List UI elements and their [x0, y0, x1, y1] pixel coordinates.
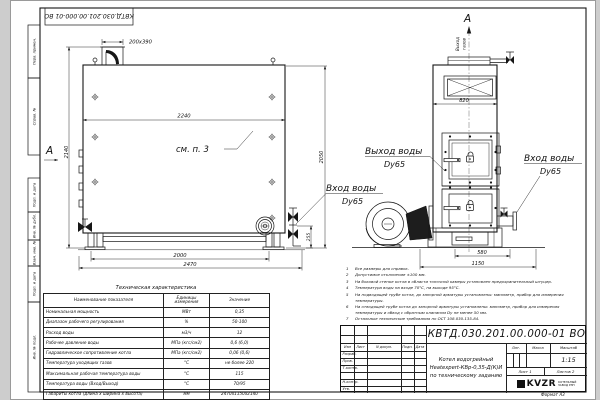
svg-text:Dy65: Dy65 [342, 197, 363, 206]
svg-text:200х390: 200х390 [129, 40, 153, 46]
frame-cell-perv: Перв. примен. [33, 38, 37, 65]
dim-580: 580 [455, 249, 510, 259]
doc-number-stamp: КВТД.030.201.00.000-01 ВО [426, 326, 587, 343]
svg-text:820: 820 [459, 98, 469, 104]
frame-cell-inv-podl: Инв. № подл. [33, 335, 37, 360]
svg-text:Выход воды: Выход воды [365, 147, 422, 157]
dim-chimney: 200х390 [102, 39, 153, 46]
gas-outlet-label-2: газов [462, 37, 467, 50]
front-view: А Выход газов 820 [352, 13, 545, 270]
lower-door [442, 189, 499, 228]
section-label-a: А [45, 145, 53, 157]
upper-door [442, 133, 501, 186]
section-arrow-a: А [44, 145, 58, 160]
col-izm: Изм [341, 343, 354, 351]
table-row: Гидравлическое сопротивление котлаМПа (к… [44, 348, 270, 358]
svg-text:см. п. 3: см. п. 3 [176, 145, 209, 155]
lit-header: Лит. [506, 343, 526, 353]
svg-text:Dy65: Dy65 [384, 160, 405, 169]
view-label-a: А [463, 13, 471, 25]
rear-flange [256, 217, 274, 235]
svg-text:2470: 2470 [183, 262, 197, 268]
frame-cell-podp1: Подп. и дата [33, 183, 37, 207]
rear-valve-assembly [288, 208, 301, 246]
table-row: Диапазон рабочего регулирования%50-100 [44, 317, 270, 327]
note-item: 7Остальные технические требования по ОСТ… [346, 316, 586, 322]
table-row: Номинальная мощностьМВт0,35 [44, 307, 270, 317]
row-tkontr: Т.контр. [341, 365, 367, 372]
blueprint-page: { "doc_number": "КВТД.030.201.00.000-01 … [0, 0, 600, 400]
title-block: КВТД.030.201.00.000-01 ВО Изм Лист N док… [340, 325, 586, 392]
table-row: Максимальная рабочая температура воды°С1… [44, 369, 270, 379]
svg-text:Вход воды: Вход воды [326, 184, 376, 194]
row-razrab: Разраб. [341, 351, 367, 358]
table-row: Рабочее давление водыМПа (кгс/см2)0,6 (6… [44, 338, 270, 348]
dim-2140: 2140 [64, 47, 100, 248]
company-logo: KVZR КОТЕЛЬНЫЙ ЗАВОД РЭП [506, 375, 587, 393]
tech-table-title: Техническая характеристика [43, 285, 269, 291]
tech-table: Наименование показателя Единицы измерени… [43, 293, 270, 400]
col-doc: N докум. [367, 343, 401, 351]
row-prov: Пров. [341, 358, 367, 365]
sheet-number: Лист 1 [506, 367, 544, 375]
svg-text:2140: 2140 [64, 146, 70, 159]
note-item: 2Допустимое отклонение ±100 мм. [346, 272, 586, 278]
table-row: Температура уходящих газов°Сне более 220 [44, 358, 270, 368]
note-item: 1Все размеры для справок. [346, 266, 586, 272]
frame-cell-podp2: Подп. и дата [33, 272, 37, 296]
svg-text:Вход воды: Вход воды [524, 154, 574, 164]
mid-band [442, 186, 499, 189]
frame-cell-sprav: Справ. № [33, 107, 37, 125]
scale-value: 1:15 [550, 353, 587, 367]
frame-cell-vzam: Взам. инв. № [33, 241, 37, 266]
svg-text:Dy65: Dy65 [540, 167, 561, 176]
kvzr-logo-text: KVZR [527, 379, 556, 389]
dim-255: 255 [286, 226, 313, 248]
col-date: Дата [414, 343, 426, 351]
dim-2470: 2470 [79, 250, 302, 271]
dim-2050: 2050 [286, 66, 327, 248]
svg-text:2000: 2000 [173, 253, 187, 259]
legs-and-base [78, 233, 305, 250]
company-name: КОТЕЛЬНЫЙ ЗАВОД РЭП [558, 381, 576, 388]
table-row: Расход водым3/ч12 [44, 328, 270, 338]
see-note-callout: см. п. 3 [176, 131, 253, 155]
right-inlet-pipe [497, 208, 517, 230]
chimney-stub [100, 47, 125, 65]
product-name: Котел водогрейный Heatexpert-КВр-0,35-Д(… [426, 343, 506, 393]
tech-table-header: Наименование показателя Единицы измерени… [44, 293, 270, 307]
gas-outlet-arrow: Выход газов [455, 26, 471, 252]
note-item: 4Температура воды на входе 70°С, на выхо… [346, 285, 586, 291]
scale-header: Масштаб [550, 343, 587, 353]
svg-text:2050: 2050 [319, 151, 325, 164]
frame-cell-inv-dubl: Инв. № дубл. [33, 214, 37, 239]
dim-2240: 2240 [83, 114, 285, 121]
top-cap [448, 52, 514, 65]
label-water-inlet-right: Вход воды Dy65 [517, 154, 582, 212]
row-nkontr: Н.контр. [341, 379, 367, 386]
svg-text:255: 255 [306, 233, 312, 242]
kvzr-logo-icon [517, 380, 525, 388]
mass-header: Масса [526, 343, 550, 353]
label-water-inlet-left: Вход воды Dy65 [296, 184, 383, 224]
left-wall-fittings [78, 150, 92, 232]
lifting-lugs [93, 58, 275, 65]
note-item: 6На отводящей трубе котла до запорной ар… [346, 304, 586, 316]
table-row: Температура воды (Вход/Выход)°С70/95 [44, 379, 270, 389]
tech-characteristics: Техническая характеристика Наименование … [43, 285, 269, 400]
note-item: 3На боковой стенке котла в области топоч… [346, 279, 586, 285]
boiler-body-front [433, 65, 497, 232]
blower-duct [406, 206, 432, 240]
side-view: 200х390 2240 2140 А см. п. 3 [44, 39, 327, 271]
table-row: Габариты котла (длина х ширина х высота)… [44, 389, 270, 399]
padlock-icon [467, 152, 474, 162]
dim-2000: 2000 [91, 251, 269, 262]
pipe-labels: Выход воды Dy65 Вход воды Dy65 Вход воды… [296, 147, 582, 224]
col-list: Лист [354, 343, 367, 351]
doc-number-top: КВТД.030.201.00.000-01 ВО [44, 12, 134, 19]
svg-text:2240: 2240 [177, 114, 191, 120]
sheets-total: Листов 2 [544, 367, 587, 375]
padlock-icon-2 [467, 201, 474, 211]
note-item: 5На подводящей трубе котла, до запорной … [346, 292, 586, 304]
explosion-hatch [444, 76, 496, 99]
row-utv: Утв. [341, 386, 367, 394]
notes-list: 1Все размеры для справок. 2Допустимое от… [346, 266, 586, 323]
format-label: Формат А3 [541, 392, 565, 397]
blower-fan [366, 202, 433, 248]
col-sign: Подп. [401, 343, 414, 351]
gas-outlet-label-1: Выход [455, 37, 460, 51]
svg-text:580: 580 [477, 250, 487, 256]
